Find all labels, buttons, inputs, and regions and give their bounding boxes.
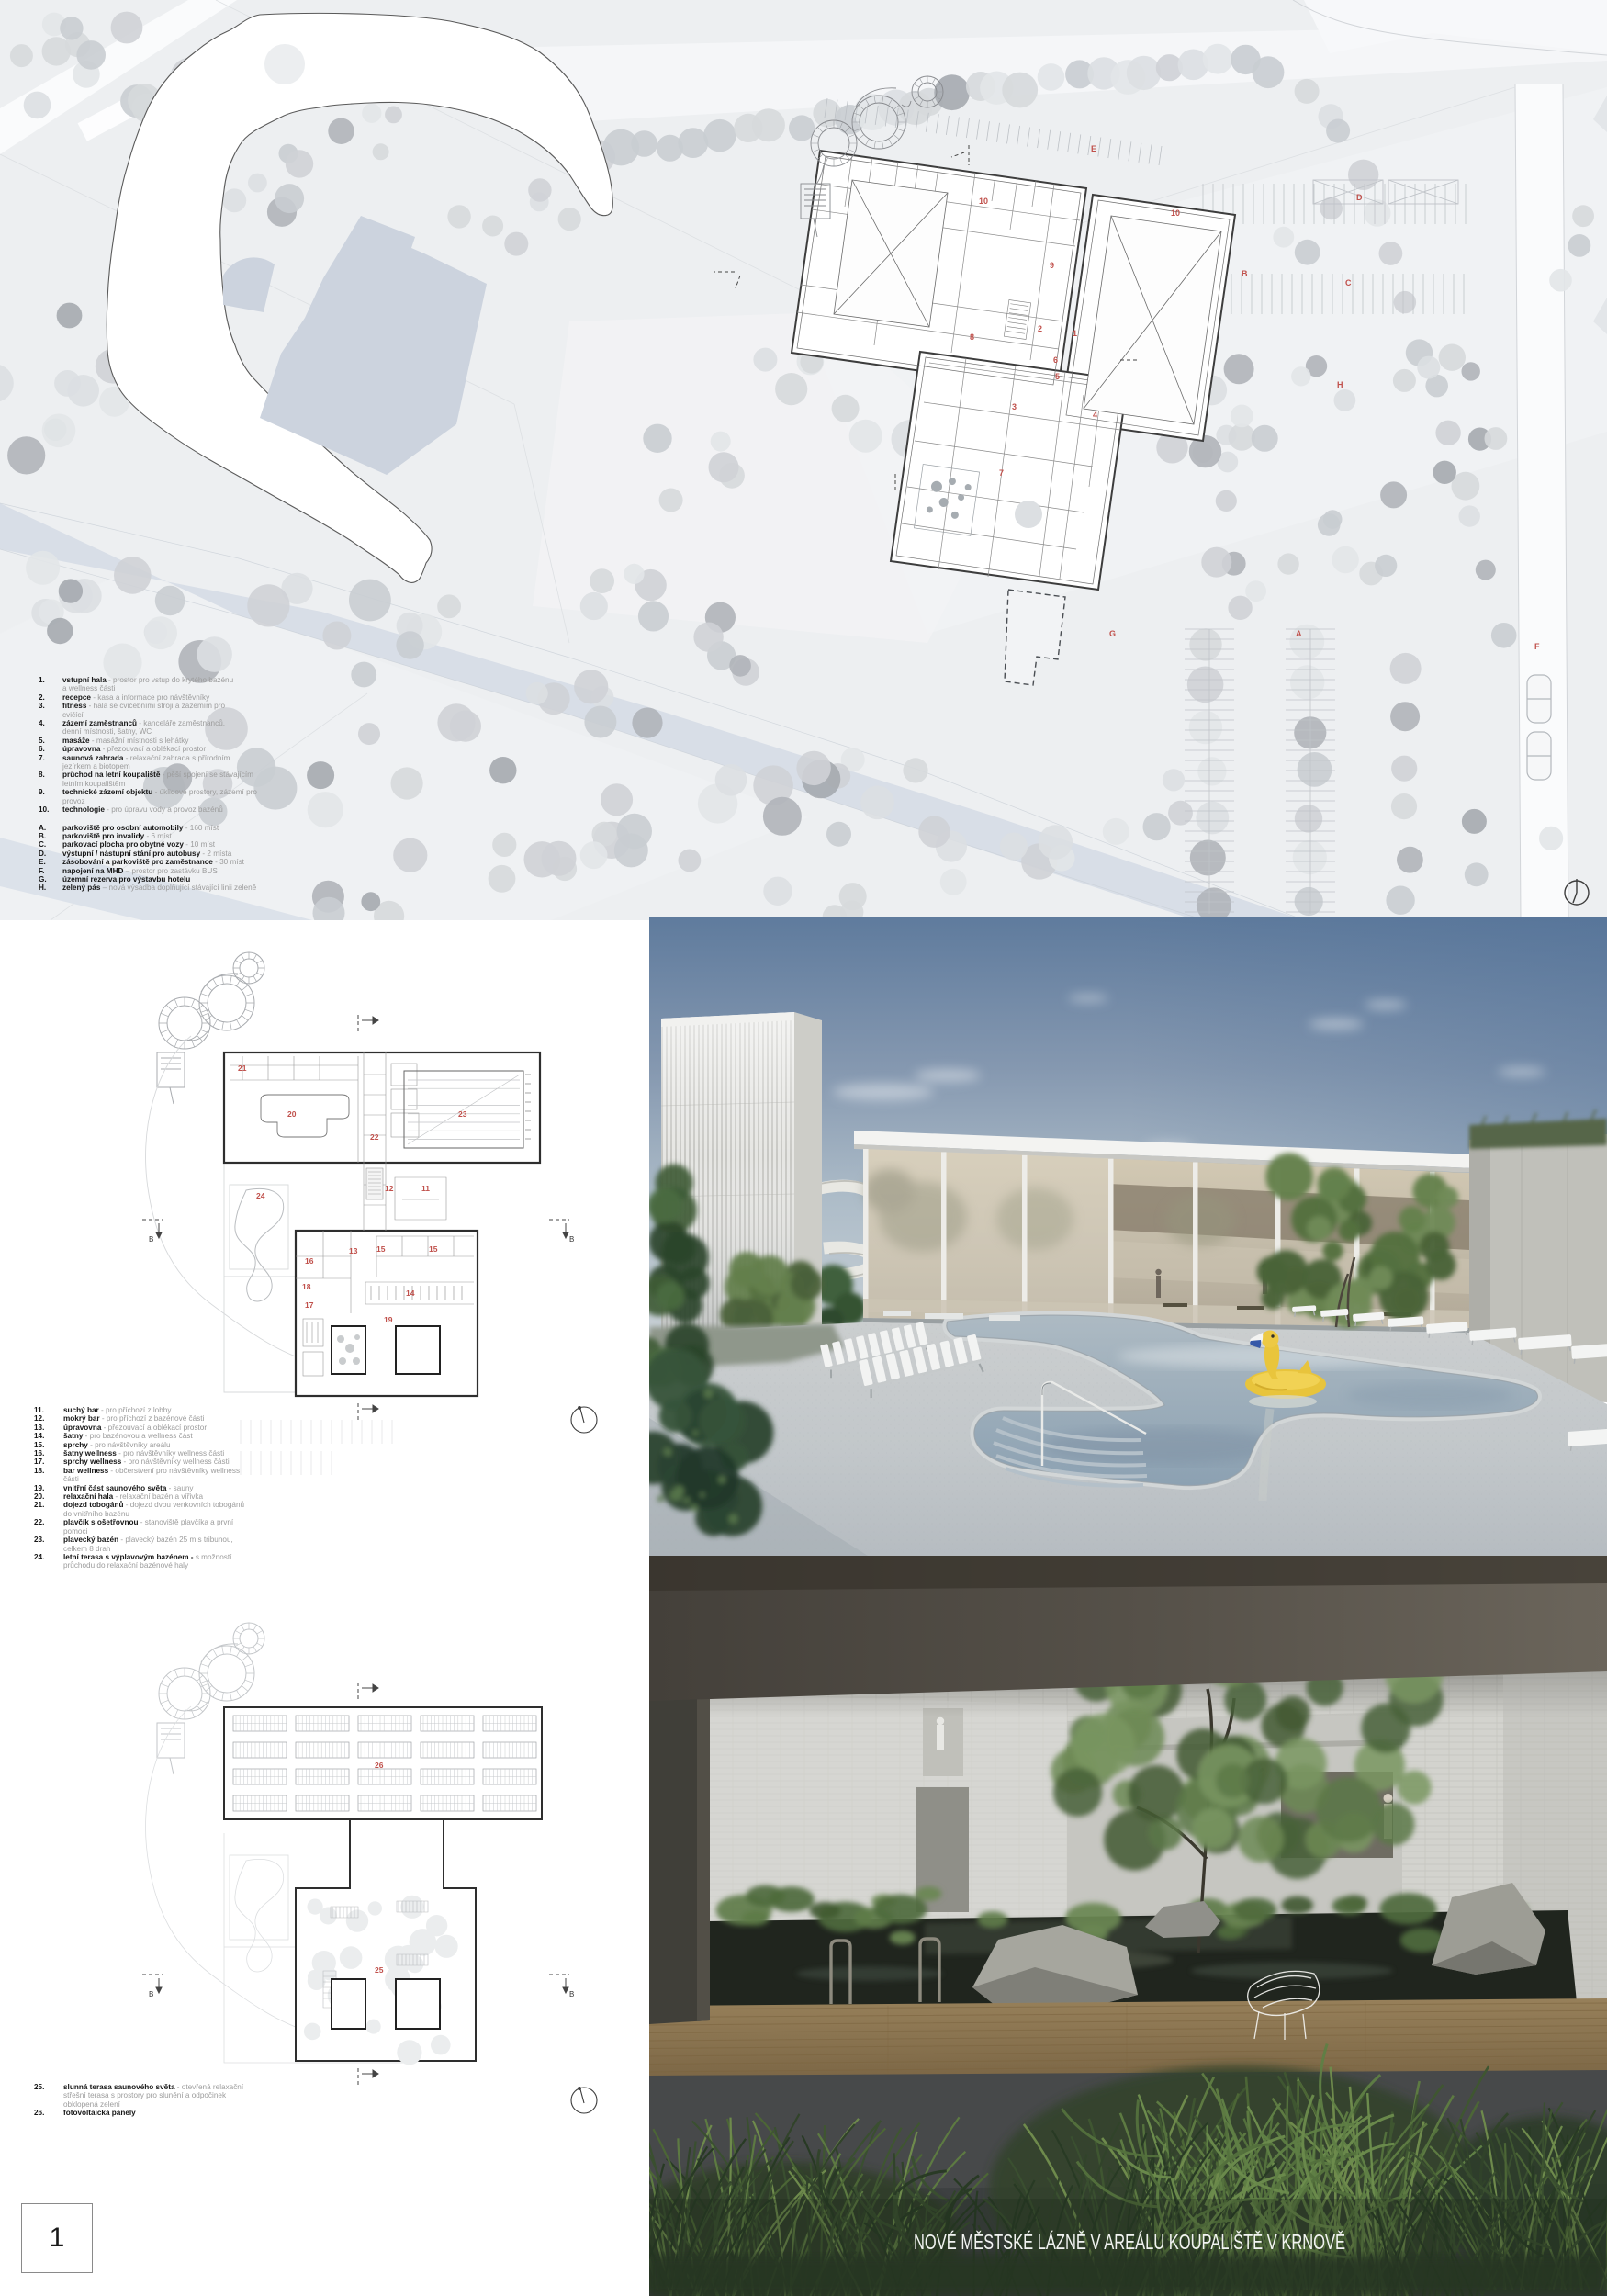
svg-text:22: 22 xyxy=(370,1132,379,1142)
svg-text:B: B xyxy=(149,1235,153,1244)
svg-text:24: 24 xyxy=(256,1191,265,1200)
svg-text:16: 16 xyxy=(305,1256,314,1266)
svg-text:10: 10 xyxy=(979,197,988,206)
svg-text:15: 15 xyxy=(429,1244,438,1254)
svg-text:18: 18 xyxy=(302,1282,311,1291)
svg-text:B: B xyxy=(149,1990,153,1998)
svg-text:B: B xyxy=(569,1235,574,1244)
svg-text:19: 19 xyxy=(384,1315,393,1324)
svg-text:H: H xyxy=(1337,380,1343,389)
svg-text:C: C xyxy=(1345,278,1352,287)
svg-text:E: E xyxy=(1091,144,1096,153)
svg-text:25: 25 xyxy=(375,1965,384,1975)
svg-text:B: B xyxy=(569,1990,574,1998)
svg-text:9: 9 xyxy=(1050,261,1054,270)
svg-text:11: 11 xyxy=(421,1184,430,1193)
svg-text:G: G xyxy=(1109,629,1116,638)
svg-text:23: 23 xyxy=(458,1109,467,1119)
svg-text:14: 14 xyxy=(406,1289,415,1298)
svg-text:NOVÉ MĚSTSKÉ LÁZNĚ V AREÁLU KO: NOVÉ MĚSTSKÉ LÁZNĚ V AREÁLU KOUPALIŠTĚ V… xyxy=(914,2229,1345,2254)
svg-text:7: 7 xyxy=(999,468,1004,478)
svg-text:1: 1 xyxy=(1073,329,1077,338)
svg-text:21: 21 xyxy=(238,1064,247,1073)
svg-text:6: 6 xyxy=(1053,355,1058,365)
svg-text:F: F xyxy=(1534,642,1540,651)
svg-text:B: B xyxy=(1242,269,1248,278)
svg-text:17: 17 xyxy=(305,1300,314,1310)
svg-text:26: 26 xyxy=(375,1761,384,1770)
svg-text:D: D xyxy=(1356,193,1363,202)
svg-text:4: 4 xyxy=(1093,411,1097,420)
svg-text:12: 12 xyxy=(385,1184,394,1193)
svg-text:15: 15 xyxy=(376,1244,386,1254)
svg-text:5: 5 xyxy=(1055,372,1060,381)
svg-text:13: 13 xyxy=(349,1246,358,1255)
svg-text:A: A xyxy=(1296,629,1302,638)
svg-text:3: 3 xyxy=(1012,402,1017,411)
svg-text:2: 2 xyxy=(1038,324,1042,333)
svg-text:10: 10 xyxy=(1171,208,1180,218)
svg-text:20: 20 xyxy=(287,1109,297,1119)
svg-text:8: 8 xyxy=(970,332,974,342)
